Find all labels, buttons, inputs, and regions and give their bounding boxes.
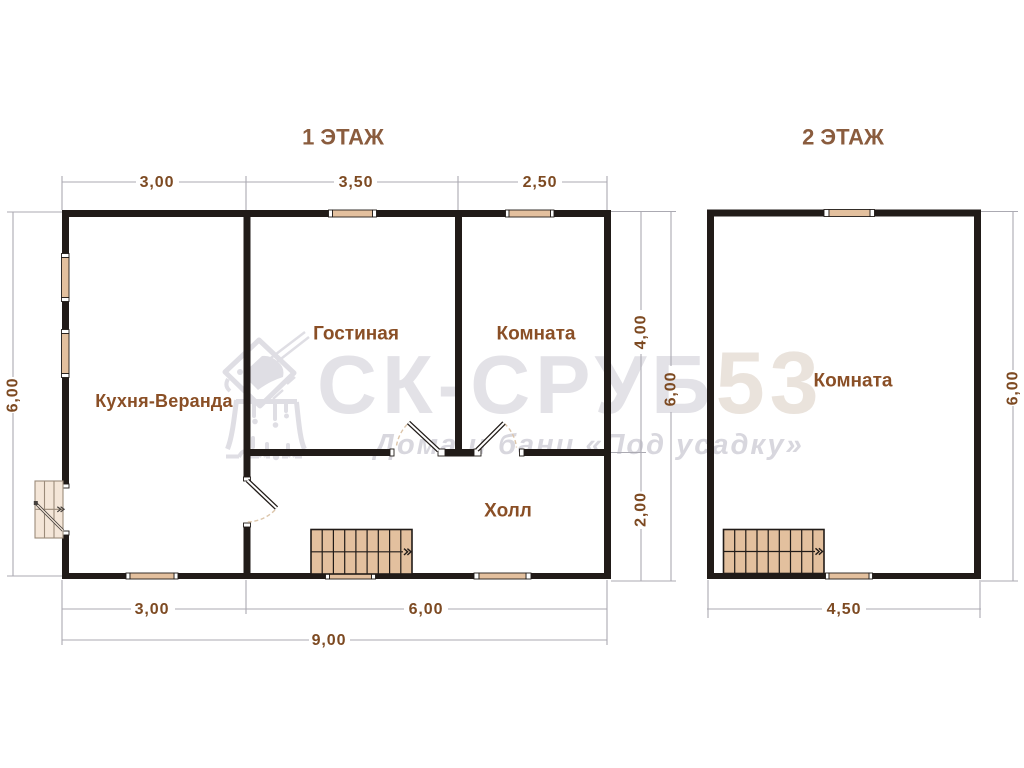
svg-text:3,00: 3,00 xyxy=(135,601,170,618)
svg-text:6,00: 6,00 xyxy=(663,372,680,407)
svg-text:Гостиная: Гостиная xyxy=(313,324,399,345)
svg-text:3,00: 3,00 xyxy=(140,174,175,191)
svg-text:6,00: 6,00 xyxy=(1005,371,1022,406)
svg-text:Кухня-Веранда: Кухня-Веранда xyxy=(95,391,233,411)
svg-text:6,00: 6,00 xyxy=(5,378,22,413)
svg-text:СК-СРУБ53: СК-СРУБ53 xyxy=(317,333,824,432)
svg-text:Комната: Комната xyxy=(814,371,893,392)
svg-text:Холл: Холл xyxy=(484,501,532,522)
svg-text:1 ЭТАЖ: 1 ЭТАЖ xyxy=(302,125,384,150)
svg-text:3,50: 3,50 xyxy=(339,174,374,191)
svg-text:2,00: 2,00 xyxy=(633,492,650,527)
svg-text:9,00: 9,00 xyxy=(312,632,347,649)
svg-text:4,00: 4,00 xyxy=(633,315,650,350)
svg-text:2,50: 2,50 xyxy=(523,174,558,191)
svg-text:6,00: 6,00 xyxy=(409,601,444,618)
svg-text:2 ЭТАЖ: 2 ЭТАЖ xyxy=(802,125,884,150)
svg-text:Комната: Комната xyxy=(497,324,576,345)
svg-text:4,50: 4,50 xyxy=(827,601,862,618)
